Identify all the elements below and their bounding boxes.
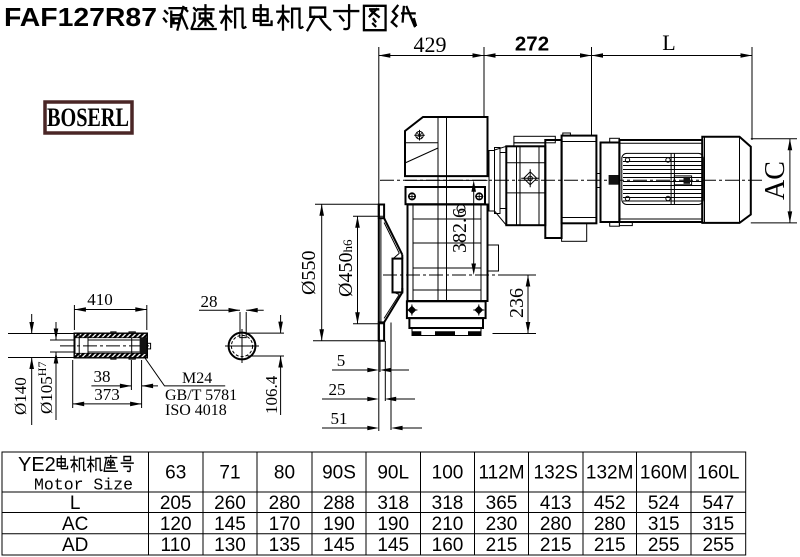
svg-text:Ø550: Ø550 <box>298 251 320 295</box>
svg-text:260: 260 <box>214 493 246 514</box>
svg-text:M24: M24 <box>182 370 212 387</box>
svg-text:90L: 90L <box>377 462 409 483</box>
svg-text:28: 28 <box>201 292 218 311</box>
svg-text:272: 272 <box>515 33 549 56</box>
svg-text:429: 429 <box>414 32 447 57</box>
svg-text:190: 190 <box>377 514 409 535</box>
svg-text:230: 230 <box>486 514 518 535</box>
svg-text:547: 547 <box>702 493 734 514</box>
svg-text:160: 160 <box>432 535 464 556</box>
svg-text:Ø105H7: Ø105H7 <box>35 362 56 414</box>
svg-text:318: 318 <box>432 493 464 514</box>
svg-text:130: 130 <box>214 535 246 556</box>
svg-text:210: 210 <box>432 514 464 535</box>
svg-text:255: 255 <box>702 535 734 556</box>
svg-text:25: 25 <box>329 380 346 399</box>
svg-text:80: 80 <box>274 462 295 483</box>
svg-text:145: 145 <box>323 535 355 556</box>
svg-text:524: 524 <box>648 493 680 514</box>
svg-text:215: 215 <box>594 535 626 556</box>
svg-text:BOSERL: BOSERL <box>47 103 129 132</box>
svg-text:100: 100 <box>432 462 464 483</box>
svg-text:135: 135 <box>269 535 301 556</box>
svg-text:160M: 160M <box>640 462 688 483</box>
svg-text:132M: 132M <box>586 462 634 483</box>
svg-text:AD: AD <box>62 535 88 556</box>
svg-text:280: 280 <box>540 514 572 535</box>
svg-text:132S: 132S <box>534 462 578 483</box>
svg-text:112M: 112M <box>478 462 524 483</box>
svg-text:315: 315 <box>648 514 680 535</box>
svg-text:215: 215 <box>540 535 572 556</box>
svg-text:280: 280 <box>594 514 626 535</box>
svg-text:110: 110 <box>161 535 191 556</box>
svg-text:AC: AC <box>760 161 791 200</box>
svg-text:170: 170 <box>269 514 301 535</box>
svg-text:373: 373 <box>94 385 120 404</box>
svg-text:51: 51 <box>331 409 348 428</box>
svg-text:215: 215 <box>486 535 518 556</box>
svg-text:38: 38 <box>94 367 111 386</box>
svg-text:71: 71 <box>219 462 240 483</box>
svg-text:Motor Size: Motor Size <box>34 476 133 495</box>
svg-text:382.6: 382.6 <box>449 208 471 253</box>
svg-text:190: 190 <box>323 514 355 535</box>
svg-text:413: 413 <box>540 493 572 514</box>
svg-text:288: 288 <box>323 493 355 514</box>
svg-text:145: 145 <box>377 535 409 556</box>
svg-text:5: 5 <box>337 351 346 370</box>
svg-text:106.4: 106.4 <box>262 375 281 414</box>
svg-text:FAF127R87: FAF127R87 <box>4 4 157 32</box>
svg-text:L: L <box>662 30 675 55</box>
svg-text:280: 280 <box>269 493 301 514</box>
svg-text:255: 255 <box>648 535 680 556</box>
svg-text:AC: AC <box>62 514 88 535</box>
svg-text:318: 318 <box>377 493 409 514</box>
svg-text:315: 315 <box>702 514 734 535</box>
svg-text:63: 63 <box>165 462 186 483</box>
svg-text:205: 205 <box>160 493 192 514</box>
svg-text:YE2: YE2 <box>18 454 56 476</box>
svg-text:410: 410 <box>87 290 113 309</box>
svg-text:ISO 4018: ISO 4018 <box>165 402 227 419</box>
svg-text:Ø450h6: Ø450h6 <box>335 239 357 297</box>
svg-text:145: 145 <box>214 514 246 535</box>
svg-text:L: L <box>70 493 81 514</box>
svg-text:452: 452 <box>594 493 626 514</box>
svg-text:365: 365 <box>486 493 518 514</box>
svg-text:90S: 90S <box>322 462 356 483</box>
svg-text:160L: 160L <box>697 462 739 483</box>
svg-text:Ø140: Ø140 <box>11 377 30 415</box>
svg-text:236: 236 <box>506 288 528 318</box>
svg-text:120: 120 <box>160 514 192 535</box>
